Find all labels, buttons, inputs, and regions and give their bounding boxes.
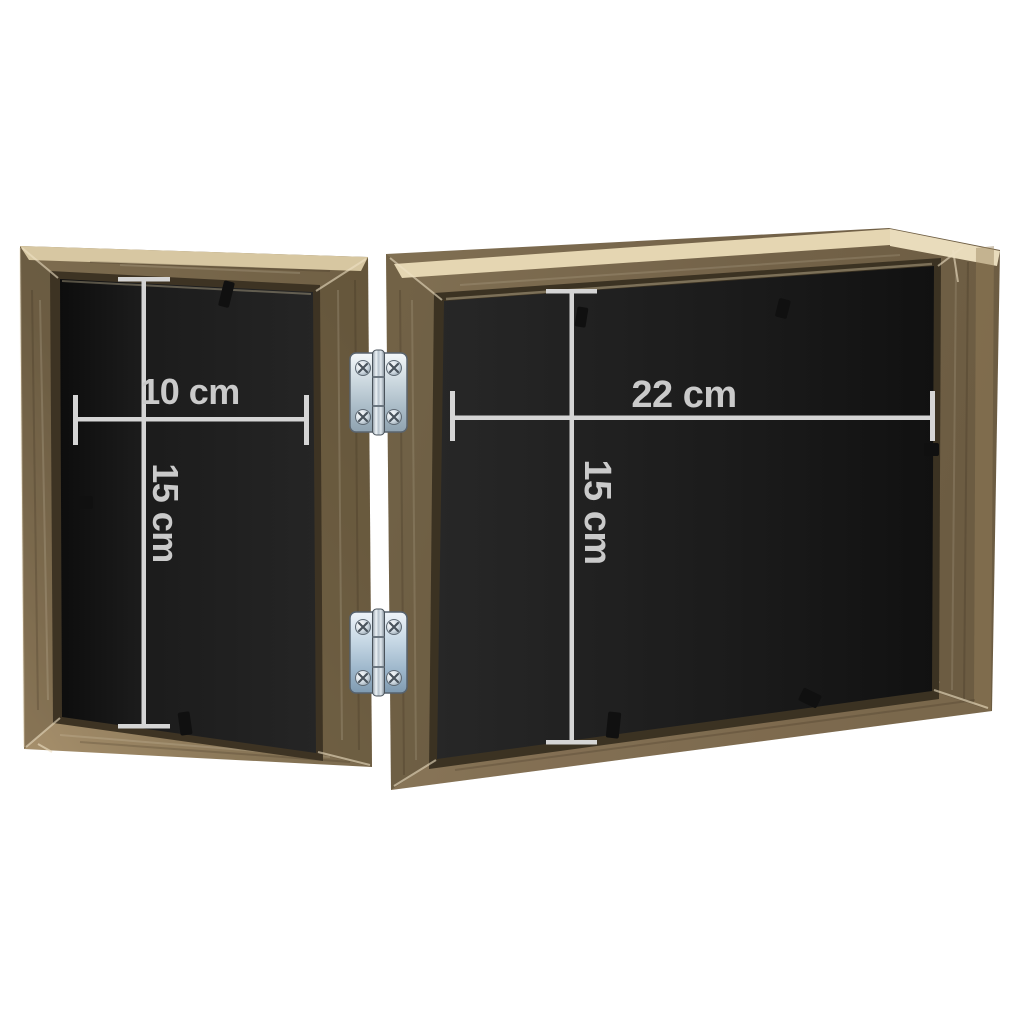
hinge-top [350, 350, 407, 435]
hinge-bottom [350, 609, 407, 696]
left-frame-panel [20, 246, 372, 767]
product-image: 10 cm 15 cm 22 cm 15 cm [0, 0, 1024, 1024]
right-frame-panel [386, 228, 1000, 790]
right-height-label: 15 cm [576, 459, 618, 564]
left-width-label: 10 cm [140, 371, 240, 412]
right-width-label: 22 cm [631, 374, 736, 416]
left-height-label: 15 cm [145, 463, 186, 563]
double-frame-illustration: 10 cm 15 cm 22 cm 15 cm [0, 0, 1024, 1024]
